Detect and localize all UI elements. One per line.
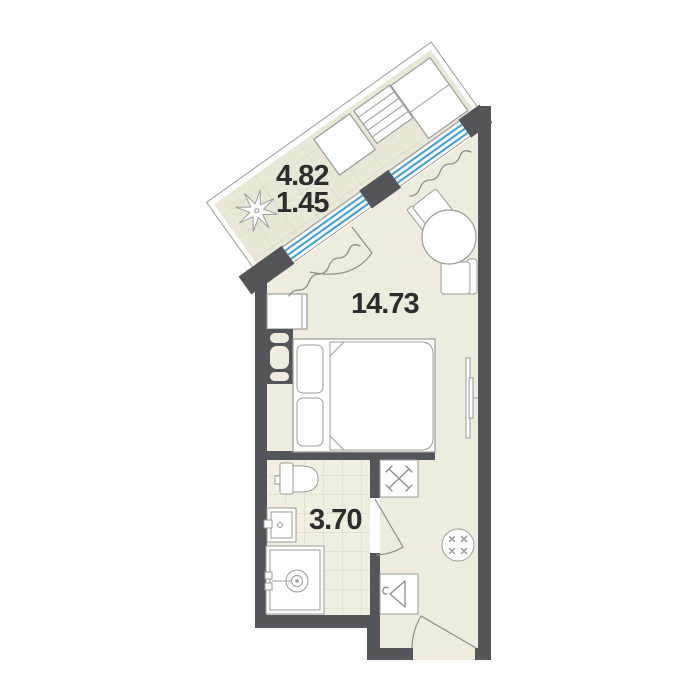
- basin-tap: [264, 520, 272, 528]
- bathroom-wall-bottom: [255, 615, 380, 628]
- bathroom-wall-right-upper: [370, 460, 380, 498]
- balcony-area-reduced-label: 1.45: [276, 189, 328, 218]
- entry-threshold-floor: [413, 646, 475, 660]
- hanger-box-icon: [380, 574, 418, 614]
- bottom-wall-left: [380, 648, 413, 660]
- washbasin: [264, 508, 296, 542]
- mattress: [330, 342, 433, 450]
- shower: [265, 546, 324, 614]
- right-wall: [478, 106, 491, 660]
- toilet: [275, 463, 318, 494]
- ventilation-box-icon: [380, 460, 418, 497]
- bathroom-area-label: 3.70: [309, 506, 361, 535]
- floor-plan-canvas: [0, 0, 700, 700]
- wardrobe: [267, 294, 307, 329]
- floor-plan-page: 4.82 1.45 14.73 3.70: [0, 0, 700, 700]
- four-cross-circle-icon: [442, 529, 474, 561]
- entry-side-wall: [367, 617, 380, 660]
- shelf-unit: [267, 329, 293, 384]
- bed: [293, 339, 435, 452]
- pillow: [297, 398, 323, 446]
- bottom-wall-right: [475, 648, 491, 660]
- living-room-area-label: 14.73: [351, 290, 419, 319]
- dining-table: [422, 210, 476, 264]
- pillow: [297, 345, 323, 393]
